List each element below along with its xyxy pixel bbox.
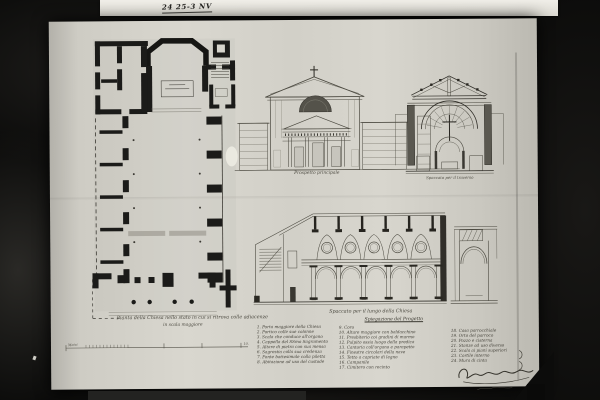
portico — [281, 116, 351, 167]
legend-column-1: 1. Porta maggiore della Chiesa 2. Portic… — [257, 324, 345, 365]
clerestory-posts — [312, 216, 436, 233]
bell-tower-plan — [213, 40, 230, 57]
scale-label: Metri — [67, 343, 78, 347]
stair-section — [254, 234, 297, 302]
main-door — [313, 143, 324, 167]
longitudinal-section — [253, 213, 498, 305]
scale-end-value: 10. — [243, 342, 248, 346]
apse-section-bay — [450, 227, 498, 304]
legend-header: Spiegazione del Progetto — [339, 317, 449, 323]
nave-arcade — [309, 264, 442, 299]
lunette-window — [299, 96, 331, 112]
archival-photograph: 24 25-3 NV — [0, 0, 600, 400]
drawing-sheet: Metri 10. Pianta della Chiesa nello stat… — [49, 18, 540, 389]
legend-column-2: 9. Coro 10. Altare maggiore con baldacch… — [339, 324, 451, 370]
side-door-right — [332, 147, 341, 167]
background-light-strip — [88, 391, 306, 400]
altar-baldachin — [435, 137, 465, 169]
legend-item: 17. Cimitero con recinto — [339, 364, 451, 370]
triumphal-arch-pier — [440, 215, 447, 301]
mounting-tab — [527, 384, 545, 400]
top-sheet-strip: 24 25-3 NV — [100, 0, 558, 16]
church-floor-plan — [91, 38, 239, 318]
dentils — [286, 133, 347, 136]
side-door-left — [295, 147, 304, 167]
architect-signature — [453, 362, 537, 387]
wall-section-right — [484, 105, 491, 165]
longitudinal-caption: Spaccato per il lungo della Chiesa — [306, 309, 436, 315]
dust-speck — [32, 356, 36, 361]
plan-caption-line2: in scala maggiore — [117, 322, 249, 328]
legend-item: 8. Abitazione ad uso del custode — [257, 359, 345, 365]
transverse-section — [395, 76, 504, 174]
archival-number: 24 25-3 NV — [162, 1, 212, 13]
scale-bar: Metri 10. — [66, 342, 249, 351]
wall-section-left — [407, 105, 414, 165]
plan-caption-line1: Pianta della Chiesa nello stato in cui s… — [117, 315, 249, 321]
facade-caption: Prospetto principale — [278, 171, 356, 177]
lunettes-oculi — [317, 234, 432, 260]
cross-finial — [310, 66, 318, 77]
transverse-caption: Spaccato per il traverso — [416, 175, 484, 180]
roof-truss — [411, 76, 487, 100]
date-line — [475, 385, 515, 392]
